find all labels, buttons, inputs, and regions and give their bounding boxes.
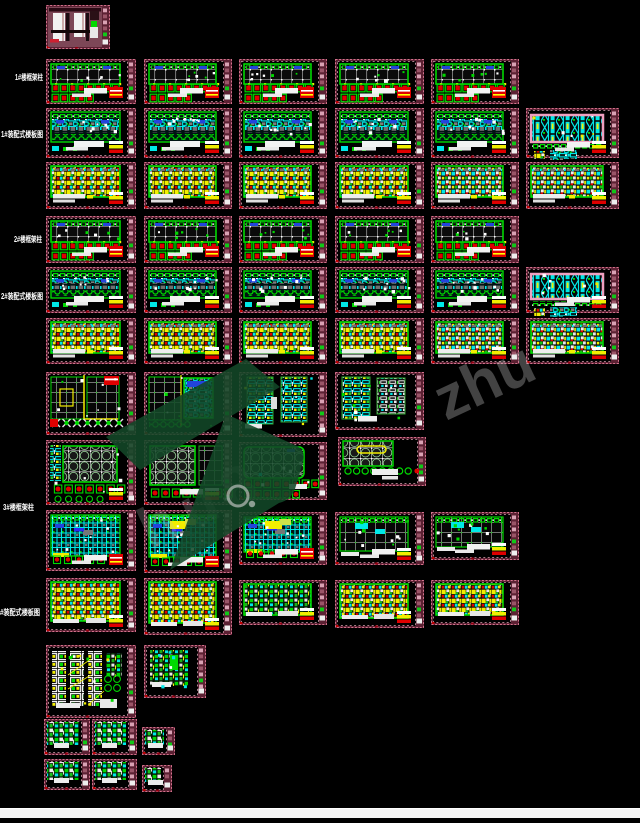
svg-text:2#装配式楼板图: 2#装配式楼板图 — [1, 291, 43, 301]
svg-text:1#楼框架柱: 1#楼框架柱 — [15, 72, 43, 82]
svg-text:2#楼框架柱: 2#楼框架柱 — [14, 234, 42, 244]
svg-text:3#楼框架柱: 3#楼框架柱 — [3, 502, 34, 512]
svg-text:1#装配式楼板图: 1#装配式楼板图 — [1, 129, 43, 139]
svg-text:#装配式楼板图: #装配式楼板图 — [0, 607, 40, 617]
